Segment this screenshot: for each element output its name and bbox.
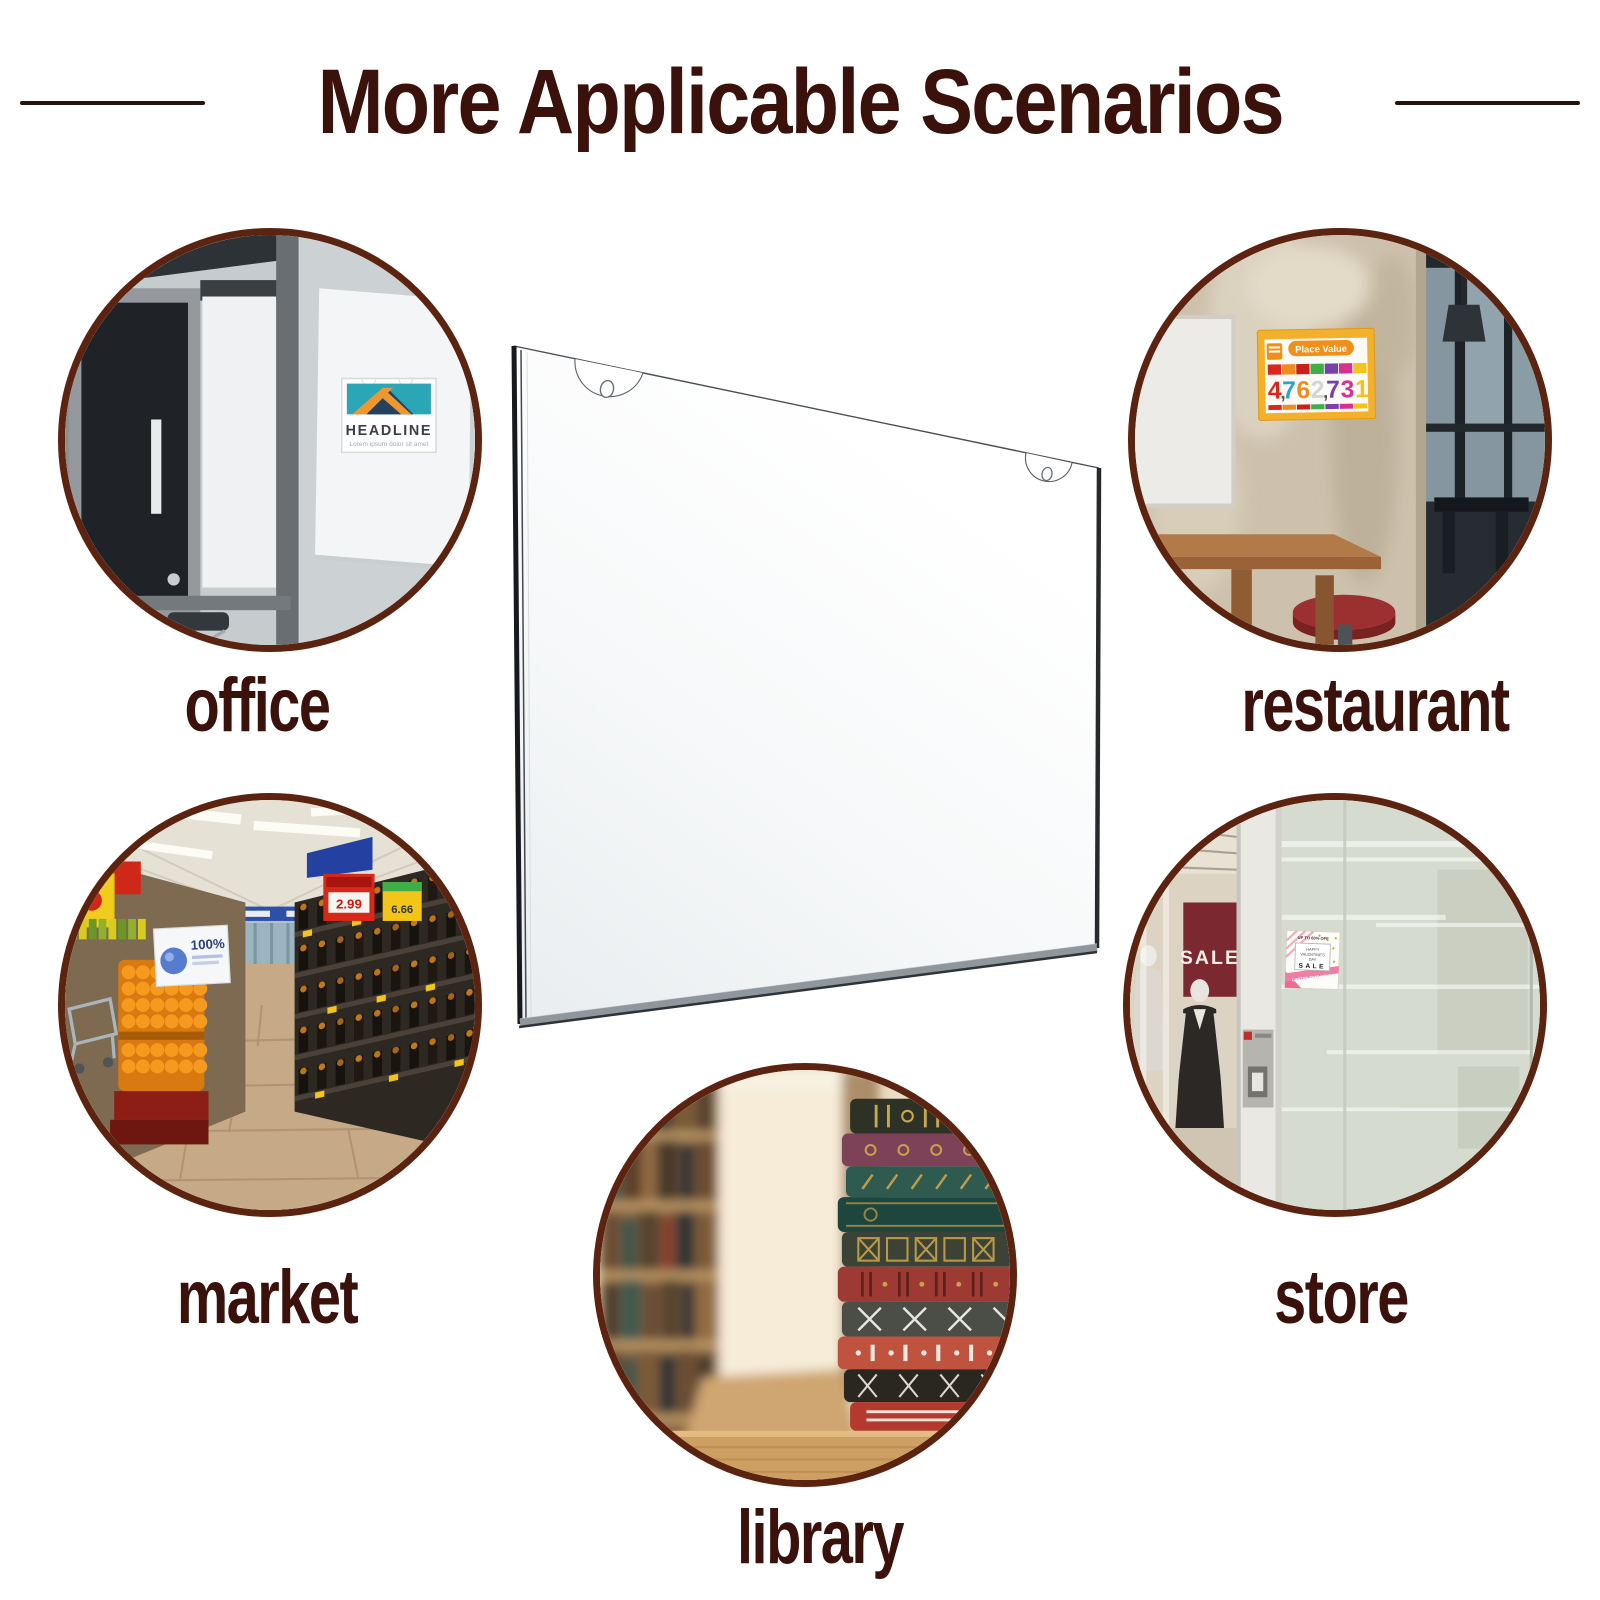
- store-interior-left: SALE: [1130, 800, 1240, 1210]
- restaurant-photo: Place Value 4 , 7 6 2 , 7: [1135, 235, 1545, 645]
- acrylic-panel: [514, 346, 1099, 1024]
- office-photo-circle: HEADLINE Lorem ipsum dolor sit amet: [58, 228, 482, 652]
- office-sign-holder: HEADLINE Lorem ipsum dolor sit amet: [342, 379, 436, 453]
- banner-100: 100%: [190, 936, 225, 953]
- pendant-lamp: [1443, 305, 1486, 342]
- store-photo: SALE: [1130, 800, 1540, 1210]
- title-row: More Applicable Scenarios: [0, 50, 1600, 155]
- place-value-poster: Place Value 4 , 7 6 2 , 7: [1257, 328, 1375, 420]
- label-restaurant: restaurant: [1241, 662, 1508, 749]
- panel-top-edge: [514, 346, 1099, 468]
- restaurant-photo-circle: Place Value 4 , 7 6 2 , 7: [1128, 228, 1552, 652]
- page-title: More Applicable Scenarios: [317, 50, 1282, 155]
- panel-right-edge: [1097, 468, 1099, 948]
- panel-bottom-edge: [520, 948, 1097, 1023]
- restaurant-window: [1426, 235, 1545, 645]
- promo-100-poster: 100%: [154, 925, 231, 986]
- blurred-bookshelves: [600, 1070, 879, 1480]
- hanging-tab-left: [575, 359, 643, 397]
- sale-banner-text: SALE: [1180, 947, 1240, 969]
- hanging-tab-right: [1025, 453, 1072, 482]
- store-photo-circle: SALE: [1123, 793, 1547, 1217]
- promo-image: More Applicable Scenarios: [0, 0, 1600, 1600]
- whiteboard: [1135, 317, 1233, 506]
- store-glass-wall: [1282, 800, 1540, 1210]
- title-rule-right: [1395, 101, 1580, 105]
- label-library: library: [737, 1494, 903, 1581]
- office-projection-screen: [202, 297, 276, 588]
- place-value-title: Place Value: [1295, 343, 1347, 355]
- svg-text:7: 7: [1326, 377, 1340, 404]
- valentine-top: UP TO 60% OFF: [1298, 935, 1330, 941]
- valentine-poster: UP TO 60% OFF HAPPY VALENTINE'S DAY SALE…: [1285, 930, 1340, 989]
- office-poster-subtext: Lorem ipsum dolor sit amet: [349, 441, 428, 448]
- svg-text:3: 3: [1340, 376, 1354, 403]
- market-photo: 100%: [65, 800, 475, 1210]
- book-stack: [838, 1099, 1010, 1431]
- wood-table: [600, 1431, 1010, 1480]
- label-market: market: [177, 1254, 357, 1341]
- svg-text:2.99: 2.99: [336, 897, 362, 912]
- market-photo-circle: 100%: [58, 793, 482, 1217]
- library-photo-circle: [593, 1063, 1017, 1487]
- panel-left-edge: [514, 346, 520, 1024]
- title-rule-left: [20, 101, 205, 105]
- red-price-sign: 2.99: [323, 874, 374, 921]
- crates: [114, 1091, 208, 1120]
- valentine-sale: SALE: [1298, 963, 1326, 971]
- label-store: store: [1274, 1254, 1408, 1341]
- label-office: office: [185, 662, 330, 749]
- svg-text:6: 6: [1296, 377, 1310, 404]
- mounting-hole-left: [599, 379, 615, 398]
- office-poster-headline: HEADLINE: [346, 423, 432, 439]
- place-value-number: 4 , 7 6 2 , 7 3 1: [1268, 376, 1369, 405]
- mounting-hole-right: [1041, 467, 1054, 482]
- yellow-price-sign: 6.66: [383, 882, 422, 921]
- svg-text:6.66: 6.66: [391, 904, 413, 916]
- svg-text:7: 7: [1282, 377, 1296, 404]
- svg-text:1: 1: [1355, 376, 1369, 403]
- office-cabinet: [81, 303, 188, 606]
- place-value-chips: [1268, 363, 1367, 375]
- office-photo: HEADLINE Lorem ipsum dolor sit amet: [65, 235, 475, 645]
- store-column: [1237, 800, 1282, 1210]
- library-photo: [600, 1070, 1010, 1480]
- svg-text:DAY: DAY: [1309, 957, 1317, 962]
